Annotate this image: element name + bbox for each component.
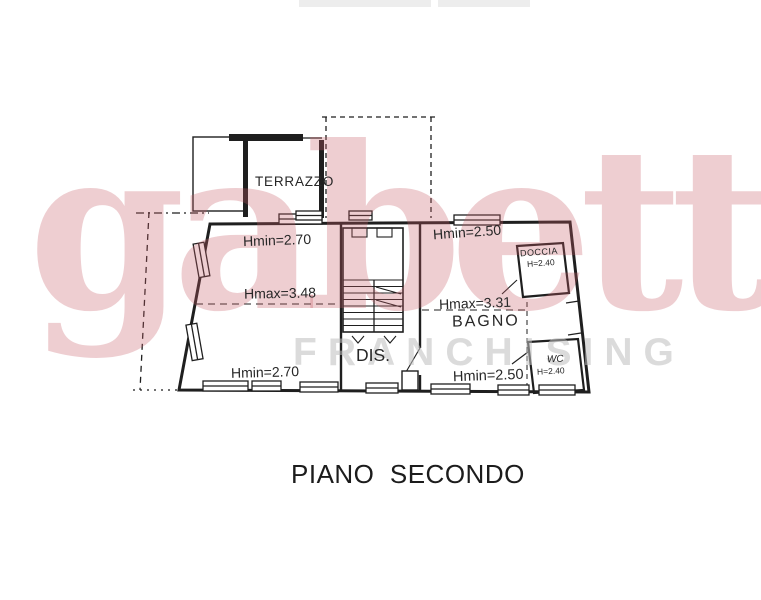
window bbox=[349, 211, 372, 220]
window bbox=[296, 211, 322, 220]
window bbox=[252, 381, 281, 391]
window bbox=[498, 385, 529, 395]
floor-title: PIANO SECONDO bbox=[291, 461, 525, 487]
window bbox=[539, 385, 575, 395]
measure-main-hmax: Hmax=3.48 bbox=[244, 285, 316, 300]
measure-main-hmin-top: Hmin=2.70 bbox=[243, 232, 312, 248]
measure-bagno-hmax: Hmax=3.31 bbox=[439, 295, 511, 312]
room-height-doccia: H=2.40 bbox=[527, 258, 555, 268]
roof-projection-dashed bbox=[322, 117, 436, 218]
room-label-bagno: BAGNO bbox=[452, 313, 520, 330]
room-label-terrazzo: TERRAZZO bbox=[255, 175, 334, 189]
window bbox=[366, 383, 398, 393]
room-height-wc: H=2.40 bbox=[537, 366, 565, 376]
measure-bagno-hmin-bottom: Hmin=2.50 bbox=[453, 368, 524, 385]
room-label-wc: WC bbox=[547, 355, 564, 366]
floor-plan-drawing bbox=[0, 0, 761, 600]
room-label-dis: DIS. bbox=[356, 347, 390, 365]
window bbox=[300, 382, 338, 392]
window bbox=[431, 384, 470, 394]
measure-main-hmin-bottom: Hmin=2.70 bbox=[231, 364, 299, 380]
entry-notch bbox=[402, 371, 418, 390]
floor-plan-scan: gabetti FRANCHISING TERRAZZO Hmin=2.70 H… bbox=[0, 0, 761, 600]
window bbox=[203, 381, 248, 391]
